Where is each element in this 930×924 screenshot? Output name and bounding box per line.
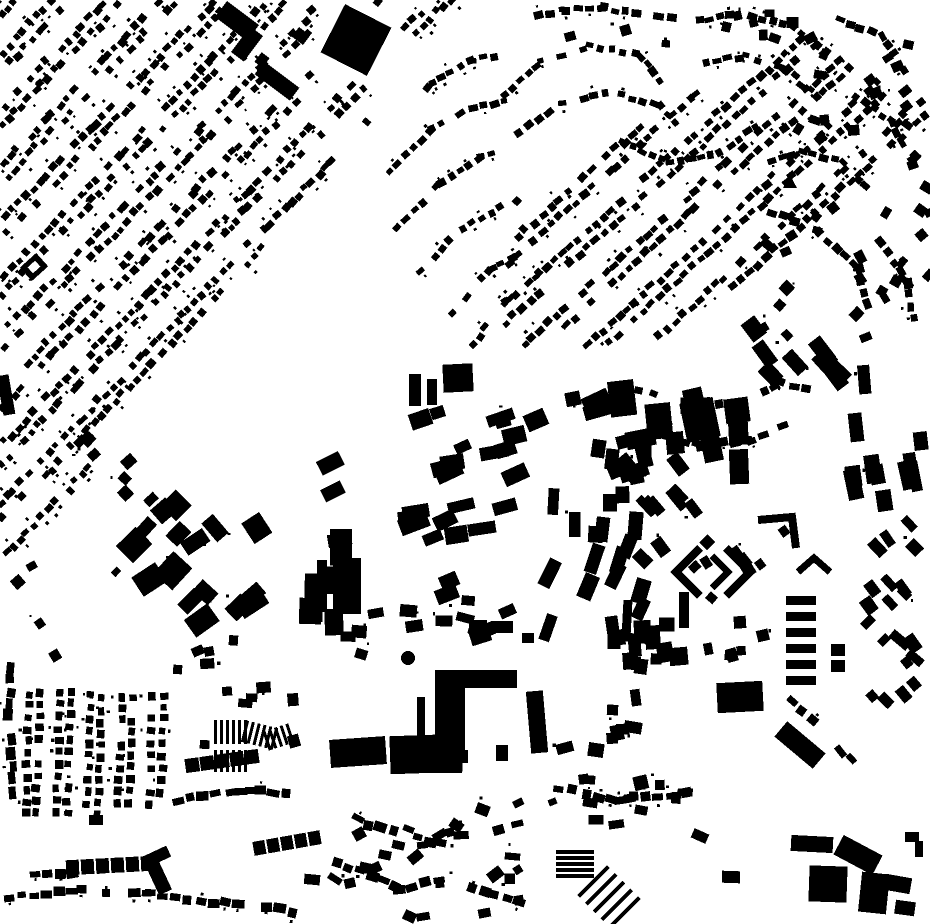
building xyxy=(640,433,652,463)
building xyxy=(447,0,457,6)
building xyxy=(95,22,106,33)
speckle xyxy=(2,738,5,741)
building xyxy=(857,365,871,395)
speckle xyxy=(887,102,891,106)
speckle xyxy=(830,43,834,47)
building xyxy=(764,137,774,147)
building xyxy=(25,469,34,478)
building xyxy=(747,208,756,217)
building xyxy=(128,361,137,370)
building xyxy=(417,841,428,849)
speckle xyxy=(515,91,519,95)
building xyxy=(115,388,124,398)
building xyxy=(813,131,827,145)
speckle xyxy=(768,241,771,243)
speckle xyxy=(234,37,238,41)
building xyxy=(377,875,391,885)
building xyxy=(260,22,269,31)
speckle xyxy=(125,344,129,348)
building xyxy=(878,31,888,42)
building xyxy=(45,126,55,136)
building xyxy=(913,431,929,451)
building xyxy=(437,119,445,127)
building xyxy=(706,150,714,159)
building xyxy=(786,695,799,707)
landmark-building xyxy=(679,592,689,628)
building xyxy=(728,421,749,445)
building xyxy=(23,774,32,782)
building xyxy=(71,266,81,276)
speckle xyxy=(46,370,50,374)
building xyxy=(33,126,42,135)
building xyxy=(848,412,865,442)
speckle xyxy=(315,187,319,191)
speckle xyxy=(853,167,857,171)
building xyxy=(712,179,723,190)
building xyxy=(95,765,102,773)
building xyxy=(87,447,102,461)
speckle xyxy=(234,153,238,157)
building xyxy=(157,776,165,784)
speckle xyxy=(447,169,451,173)
building xyxy=(40,391,50,401)
building xyxy=(392,223,402,233)
building xyxy=(140,313,148,321)
building xyxy=(32,290,43,301)
building xyxy=(895,685,913,704)
building xyxy=(754,558,767,571)
building xyxy=(176,51,183,58)
building xyxy=(127,308,135,316)
building xyxy=(512,797,525,808)
building xyxy=(171,264,180,273)
speckle xyxy=(637,189,640,192)
speckle xyxy=(907,317,911,320)
speckle xyxy=(657,804,660,807)
building xyxy=(630,689,642,707)
building xyxy=(23,726,32,734)
speckle xyxy=(545,235,549,239)
building xyxy=(111,566,122,577)
speckle xyxy=(664,38,667,42)
building xyxy=(515,75,524,84)
speckle xyxy=(208,600,211,602)
speckle xyxy=(17,433,21,437)
speckle xyxy=(596,192,600,196)
terrace-strip xyxy=(601,889,634,922)
building xyxy=(736,646,746,656)
building xyxy=(539,210,549,220)
building xyxy=(579,94,590,103)
building xyxy=(197,307,207,317)
building xyxy=(183,80,193,90)
speckle xyxy=(739,7,741,10)
building xyxy=(628,96,637,103)
building xyxy=(601,151,611,161)
building xyxy=(556,52,567,60)
building xyxy=(197,12,206,21)
building xyxy=(801,384,812,393)
building xyxy=(174,163,182,171)
building xyxy=(169,893,180,901)
building xyxy=(681,252,691,262)
speckle xyxy=(229,277,232,280)
building xyxy=(436,73,447,83)
building xyxy=(406,14,417,25)
building xyxy=(29,36,37,44)
speckle xyxy=(480,796,483,799)
speckle xyxy=(617,792,620,795)
building xyxy=(591,331,601,341)
building xyxy=(630,315,638,323)
building xyxy=(179,104,188,113)
speckle xyxy=(67,234,70,237)
building xyxy=(4,113,15,124)
building xyxy=(45,447,55,457)
speckle xyxy=(238,186,242,190)
building xyxy=(502,893,513,903)
building xyxy=(467,218,476,227)
speckle xyxy=(48,726,50,729)
speckle xyxy=(855,145,859,149)
building xyxy=(166,173,176,183)
speckle xyxy=(758,54,761,58)
building xyxy=(102,889,110,897)
building xyxy=(331,857,343,869)
speckle xyxy=(194,171,197,174)
building xyxy=(274,6,284,16)
building xyxy=(607,632,620,649)
building xyxy=(739,105,749,115)
building xyxy=(841,107,852,118)
building xyxy=(316,451,345,476)
building xyxy=(66,486,76,496)
building xyxy=(87,704,94,711)
speckle xyxy=(252,248,256,252)
speckle xyxy=(287,37,290,40)
building xyxy=(70,154,79,163)
landmark-building xyxy=(915,841,923,857)
building xyxy=(711,107,721,117)
speckle xyxy=(28,799,31,802)
speckle xyxy=(37,388,41,392)
building xyxy=(639,290,648,299)
building xyxy=(2,228,10,236)
building xyxy=(4,282,13,290)
building xyxy=(878,112,887,121)
building xyxy=(697,254,706,262)
speckle xyxy=(473,227,477,231)
building xyxy=(400,22,410,32)
speckle xyxy=(659,149,663,153)
building xyxy=(197,291,207,301)
speckle xyxy=(29,168,33,172)
building xyxy=(461,595,475,606)
building xyxy=(146,727,155,735)
building xyxy=(219,267,228,276)
building xyxy=(118,704,126,712)
building xyxy=(198,175,207,184)
speckle xyxy=(230,179,233,182)
building xyxy=(157,753,166,761)
speckle xyxy=(686,112,690,116)
building xyxy=(266,788,280,798)
landmark-building xyxy=(491,621,513,633)
building xyxy=(110,44,118,52)
building xyxy=(304,70,314,80)
speckle xyxy=(93,299,97,303)
building xyxy=(145,889,156,896)
speckle xyxy=(112,24,116,28)
building xyxy=(721,21,732,33)
speckle xyxy=(201,893,204,896)
terrace-strip xyxy=(786,644,816,653)
building xyxy=(42,870,53,879)
building xyxy=(399,604,417,618)
building xyxy=(273,902,287,913)
building xyxy=(127,762,135,770)
speckle xyxy=(897,47,901,51)
speckle xyxy=(47,30,51,34)
building xyxy=(95,788,103,796)
building xyxy=(282,49,292,58)
building xyxy=(586,297,596,306)
building xyxy=(126,786,134,794)
building xyxy=(159,125,167,133)
landmark-building xyxy=(774,721,825,768)
building xyxy=(736,202,745,212)
speckle xyxy=(101,196,105,200)
building xyxy=(487,150,495,157)
speckle xyxy=(888,89,890,92)
building xyxy=(77,191,85,199)
building xyxy=(209,789,221,798)
building xyxy=(788,98,799,109)
speckle xyxy=(182,290,186,294)
building xyxy=(649,124,660,134)
speckle xyxy=(750,120,754,124)
building xyxy=(113,0,122,9)
speckle xyxy=(315,80,319,84)
building xyxy=(276,155,285,164)
building xyxy=(64,37,73,46)
building xyxy=(171,110,179,118)
building xyxy=(26,701,34,708)
speckle xyxy=(623,16,626,19)
speckle xyxy=(433,612,435,616)
building xyxy=(170,1,178,9)
building xyxy=(761,120,772,130)
building xyxy=(431,252,440,262)
building xyxy=(39,245,49,255)
speckle xyxy=(841,119,844,122)
building xyxy=(746,77,757,87)
building xyxy=(670,260,680,269)
building xyxy=(453,831,469,840)
building xyxy=(252,192,263,203)
building xyxy=(37,701,43,708)
building xyxy=(290,138,300,148)
building xyxy=(122,217,132,227)
building xyxy=(219,897,231,908)
building xyxy=(250,84,259,93)
building xyxy=(24,714,32,721)
building xyxy=(205,190,214,199)
speckle xyxy=(717,66,720,69)
building xyxy=(608,220,619,231)
speckle xyxy=(844,136,848,140)
building xyxy=(578,773,589,784)
building xyxy=(46,0,56,6)
building xyxy=(778,280,795,297)
building xyxy=(498,603,517,619)
speckle xyxy=(9,903,12,906)
building xyxy=(665,431,685,455)
speckle xyxy=(19,152,23,156)
building xyxy=(466,882,478,894)
courtyard-block xyxy=(712,556,728,588)
building xyxy=(730,92,741,103)
building xyxy=(745,192,755,202)
building xyxy=(113,786,121,795)
building xyxy=(234,99,244,108)
speckle xyxy=(193,106,197,110)
building xyxy=(456,62,465,71)
building xyxy=(0,499,7,508)
building xyxy=(94,189,103,198)
building xyxy=(244,261,252,269)
speckle xyxy=(675,306,679,310)
building xyxy=(550,255,559,264)
speckle xyxy=(254,270,258,274)
speckle xyxy=(102,99,106,103)
speckle xyxy=(3,766,6,768)
building xyxy=(407,848,425,865)
building xyxy=(790,70,800,80)
building xyxy=(51,442,58,449)
speckle xyxy=(800,160,804,164)
building xyxy=(135,202,144,211)
speckle xyxy=(532,265,535,268)
speckle xyxy=(36,134,40,138)
speckle xyxy=(540,260,544,264)
building xyxy=(55,737,64,744)
building xyxy=(153,277,162,286)
terrace-strip xyxy=(252,840,266,856)
speckle xyxy=(450,872,453,874)
building xyxy=(867,26,879,37)
speckle xyxy=(444,63,447,66)
building xyxy=(88,143,97,152)
speckle xyxy=(404,606,407,609)
building xyxy=(898,84,913,98)
speckle xyxy=(591,745,594,748)
building xyxy=(778,238,789,248)
speckle xyxy=(721,189,725,193)
building xyxy=(469,340,478,349)
building xyxy=(171,204,181,214)
speckle xyxy=(157,98,161,102)
building xyxy=(231,217,240,226)
building xyxy=(561,319,571,330)
building xyxy=(367,607,384,619)
building xyxy=(905,538,924,557)
speckle xyxy=(463,159,467,163)
speckle xyxy=(111,695,114,698)
speckle xyxy=(94,132,98,136)
speckle xyxy=(7,307,11,311)
speckle xyxy=(92,756,95,758)
building xyxy=(696,154,705,161)
building xyxy=(649,389,659,398)
building xyxy=(36,345,45,354)
building xyxy=(82,294,92,304)
building xyxy=(160,693,169,700)
building xyxy=(122,163,130,171)
speckle xyxy=(574,215,577,218)
speckle xyxy=(737,51,740,54)
speckle xyxy=(13,461,17,465)
speckle xyxy=(429,31,434,36)
speckle xyxy=(367,643,369,645)
building xyxy=(71,45,80,54)
speckle xyxy=(213,197,216,200)
building xyxy=(65,783,73,793)
building xyxy=(95,355,104,364)
courtyard-block xyxy=(676,548,700,596)
building xyxy=(0,460,6,469)
building xyxy=(769,16,778,25)
building xyxy=(34,617,46,630)
building xyxy=(163,283,172,292)
speckle xyxy=(57,800,60,804)
building xyxy=(7,771,16,784)
building xyxy=(834,744,847,758)
speckle xyxy=(107,710,110,713)
building xyxy=(117,471,132,486)
speckle xyxy=(189,604,191,607)
building xyxy=(45,299,56,309)
building xyxy=(697,176,707,187)
building xyxy=(584,279,595,289)
building xyxy=(40,137,48,145)
terrace-strip xyxy=(229,751,245,767)
building xyxy=(152,185,164,197)
building xyxy=(157,893,168,899)
speckle xyxy=(359,811,362,814)
building xyxy=(582,242,591,251)
building xyxy=(85,715,93,724)
speckle xyxy=(473,66,477,69)
speckle xyxy=(74,282,78,286)
building xyxy=(859,288,868,298)
building xyxy=(727,281,738,291)
building xyxy=(447,171,457,181)
building xyxy=(606,732,618,744)
speckle xyxy=(635,516,638,518)
building xyxy=(55,6,65,16)
building xyxy=(11,165,21,175)
speckle xyxy=(775,341,779,344)
landmark-building xyxy=(905,832,919,842)
building xyxy=(128,888,141,897)
building xyxy=(115,321,124,329)
building xyxy=(438,571,461,592)
building xyxy=(210,276,219,285)
speckle xyxy=(292,153,296,157)
speckle xyxy=(770,25,774,28)
building xyxy=(190,73,200,83)
